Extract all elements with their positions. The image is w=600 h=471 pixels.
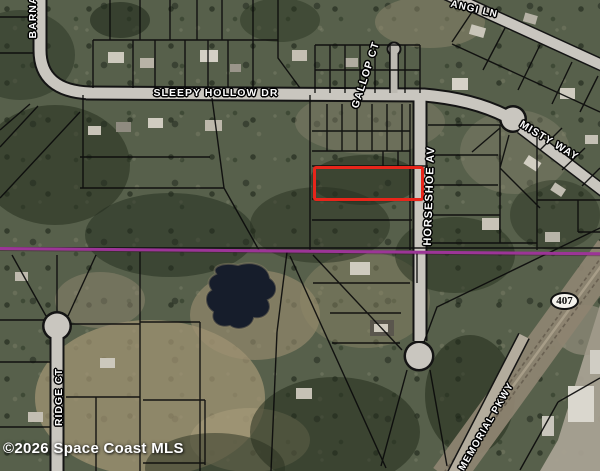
map-overlay-layer: [0, 0, 600, 471]
route-shield-number: 407: [556, 295, 573, 307]
street-label-ridge-ct: RIDGE CT: [54, 368, 65, 426]
route-shield-icon: 407: [550, 292, 579, 310]
street-label-sleepy-hollow-dr: SLEEPY HOLLOW DR: [154, 88, 279, 99]
highlighted-parcel-outline[interactable]: [313, 166, 424, 201]
copyright-watermark: ©2026 Space Coast MLS: [3, 440, 184, 457]
map-canvas[interactable]: BARNA SLEEPY HOLLOW DR GALLOP CT ANGI LN…: [0, 0, 600, 471]
street-label-barna: BARNA: [28, 0, 39, 38]
